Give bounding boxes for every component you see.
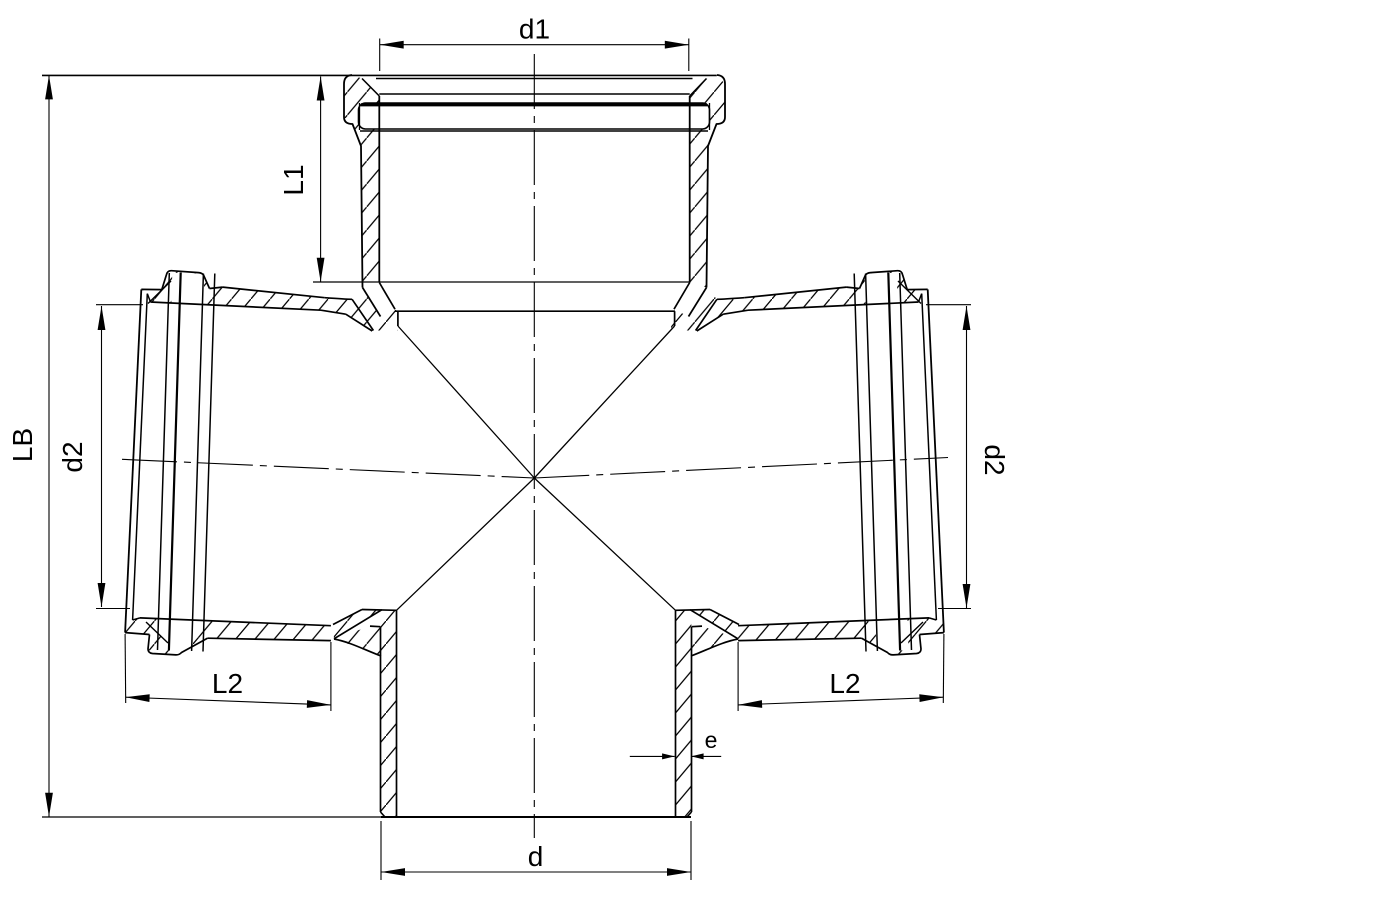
svg-text:L2: L2 (212, 668, 243, 699)
svg-text:LB: LB (7, 428, 38, 462)
svg-text:d1: d1 (519, 14, 550, 45)
svg-text:L2: L2 (829, 668, 860, 699)
svg-text:d2: d2 (979, 444, 1010, 475)
svg-text:e: e (705, 727, 718, 753)
svg-text:d2: d2 (57, 441, 88, 472)
svg-text:L1: L1 (278, 164, 309, 195)
svg-text:d: d (528, 841, 544, 872)
